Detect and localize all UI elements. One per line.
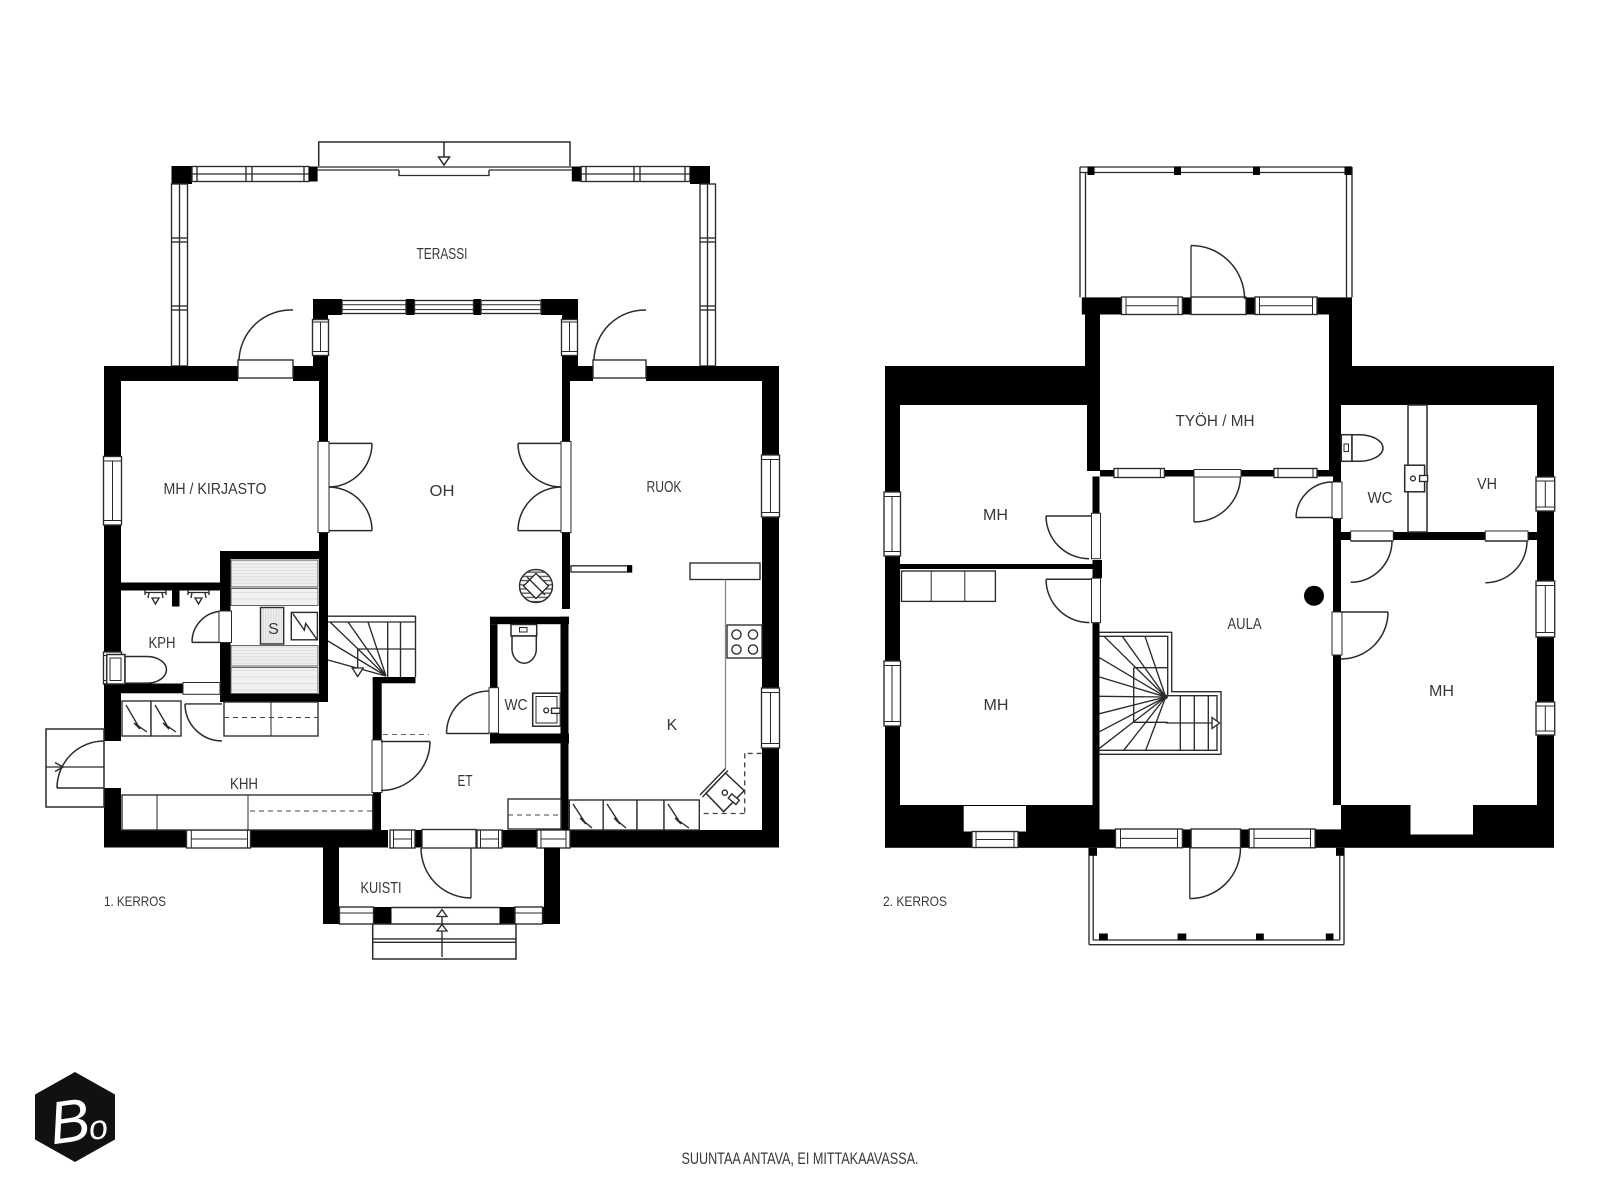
svg-text:KHH: KHH	[230, 776, 258, 793]
svg-text:MH: MH	[1429, 683, 1454, 700]
svg-text:1. KERROS: 1. KERROS	[104, 893, 166, 909]
svg-text:MH: MH	[983, 507, 1008, 524]
svg-text:WC: WC	[1368, 490, 1393, 507]
svg-text:VH: VH	[1477, 476, 1497, 493]
svg-text:ET: ET	[458, 773, 473, 790]
svg-text:RUOK: RUOK	[647, 479, 682, 496]
svg-text:WC: WC	[505, 697, 528, 714]
svg-text:MH: MH	[984, 697, 1009, 714]
svg-text:SUUNTAA ANTAVA, EI MITTAKAAVAS: SUUNTAA ANTAVA, EI MITTAKAAVASSA.	[682, 1149, 919, 1168]
svg-text:TYÖH / MH: TYÖH / MH	[1176, 412, 1255, 430]
svg-text:TERASSI: TERASSI	[417, 246, 468, 263]
svg-text:KPH: KPH	[149, 635, 176, 652]
svg-text:2. KERROS: 2. KERROS	[883, 893, 947, 909]
svg-text:K: K	[667, 717, 678, 734]
svg-text:S: S	[268, 621, 279, 638]
svg-text:MH / KIRJASTO: MH / KIRJASTO	[164, 481, 267, 498]
svg-text:KUISTI: KUISTI	[361, 880, 402, 897]
svg-text:OH: OH	[430, 483, 455, 500]
svg-text:AULA: AULA	[1228, 616, 1262, 633]
